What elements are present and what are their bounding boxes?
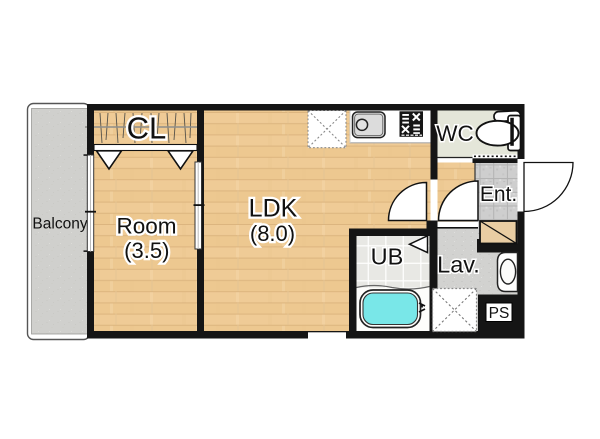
svg-text:(3.5): (3.5) [124, 238, 169, 263]
svg-text:Ent.: Ent. [480, 183, 517, 206]
svg-text:(8.0): (8.0) [250, 221, 295, 246]
svg-text:LDK: LDK [249, 195, 298, 223]
svg-text:Room: Room [116, 214, 176, 239]
svg-text:WC: WC [436, 121, 474, 146]
svg-text:UB: UB [371, 244, 404, 270]
svg-text:CL: CL [127, 111, 167, 146]
svg-text:Balcony: Balcony [32, 216, 87, 233]
svg-text:PS: PS [489, 305, 510, 322]
svg-text:Lav.: Lav. [437, 252, 480, 278]
